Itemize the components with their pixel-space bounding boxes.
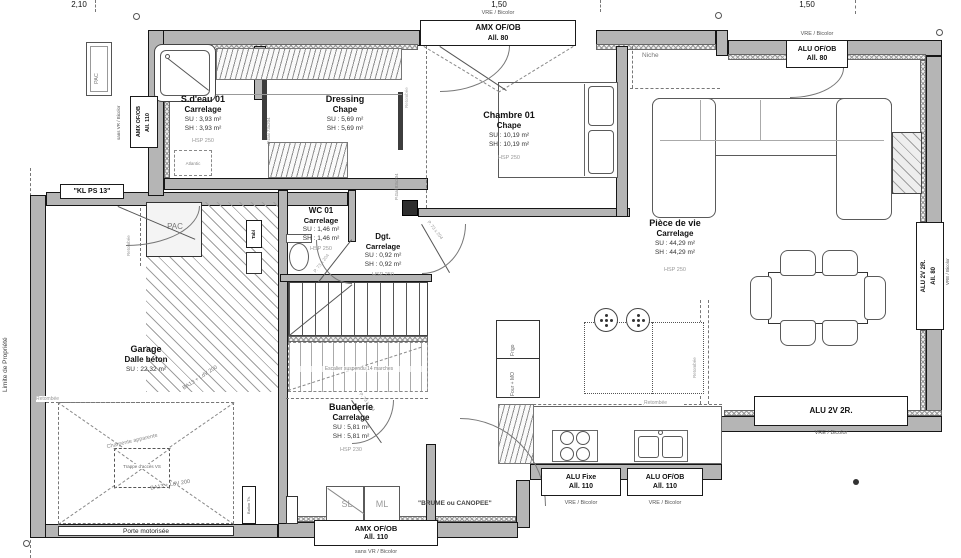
insulation-strip bbox=[596, 44, 716, 50]
water-heater: Ballon Th. bbox=[242, 486, 256, 524]
chair bbox=[750, 276, 772, 320]
chair bbox=[780, 320, 816, 346]
structural-post bbox=[402, 200, 418, 216]
sink-basin bbox=[662, 436, 683, 458]
ceiling-change-line bbox=[426, 46, 427, 208]
interior-wall bbox=[426, 444, 436, 524]
chair bbox=[780, 250, 816, 276]
bed-headboard-line bbox=[584, 84, 585, 176]
pillow bbox=[588, 86, 614, 126]
pac-label: PAC bbox=[94, 56, 104, 84]
retombee-line bbox=[286, 398, 428, 399]
retombee-label: Retombée bbox=[644, 400, 684, 406]
burner-icon bbox=[576, 447, 590, 461]
stairs-label: Escalier suspendu 14 marches bbox=[296, 366, 422, 372]
window-note: sans VR / Bicolor bbox=[116, 94, 126, 152]
exterior-wall bbox=[716, 30, 728, 56]
window-label-kitchen-ofob: ALU OF/OB All. 110 bbox=[627, 468, 703, 496]
sofa-chaise bbox=[836, 98, 892, 220]
kitchen-island bbox=[584, 322, 704, 394]
dining-table bbox=[768, 272, 868, 324]
retombee-label: Retombée bbox=[404, 70, 413, 108]
room-label-sdeau: S.d'eau 01 Carrelage SU : 3,93 m² SH : 3… bbox=[164, 94, 242, 144]
wall-fixture bbox=[286, 496, 298, 524]
room-label-piece-de-vie: Pièce de vie Carrelage SU : 44,29 m² SH … bbox=[640, 218, 710, 273]
dimension-tick bbox=[855, 0, 856, 14]
wall-fixture bbox=[246, 252, 262, 274]
stool-dots-icon bbox=[605, 319, 608, 322]
insulation-strip bbox=[920, 330, 926, 416]
unit-divider bbox=[496, 358, 540, 359]
retombee-label: Retombée bbox=[36, 396, 76, 402]
floor-plan: 2,10 1,50 1,50 Limite de Propriété bbox=[0, 0, 961, 558]
property-boundary-label: Limite de Propriété bbox=[2, 292, 14, 392]
window-note: VRE / Bicolor bbox=[786, 31, 848, 37]
window-label-kitchen-fixed: ALU Fixe All. 110 bbox=[541, 468, 621, 496]
bar-stool bbox=[594, 308, 618, 332]
dimension-label: 1,50 bbox=[482, 0, 516, 9]
garage-door-label: Porte motorisée bbox=[96, 528, 196, 535]
drain-marker bbox=[853, 479, 859, 485]
stool-dots-icon bbox=[637, 319, 640, 322]
window-note: sans VR / Bicolor bbox=[336, 549, 416, 555]
window-label-right: ALU 2V 2R. All. 80 bbox=[916, 222, 944, 330]
dimension-label: 1,50 bbox=[790, 0, 824, 9]
niche-line bbox=[630, 88, 720, 89]
sofa-cushion-line bbox=[660, 140, 884, 141]
retombee-label: Retombée bbox=[692, 334, 701, 378]
dressing-closet bbox=[216, 48, 402, 80]
electrical-panel: Tabl bbox=[246, 220, 262, 248]
cooktop bbox=[552, 430, 598, 462]
flue-duct bbox=[892, 132, 922, 194]
room-label-wc: WC 01 Carrelage SU : 1,46 m² SH : 1,46 m… bbox=[292, 206, 350, 252]
dryer-label: ML bbox=[365, 499, 399, 509]
radiator: Atlantic bbox=[174, 150, 212, 176]
faucet bbox=[658, 430, 663, 435]
pocket-door bbox=[398, 92, 403, 150]
oven-label: Four + MO bbox=[510, 360, 524, 396]
window-label-left: AMX OF/OB All. 110 bbox=[130, 96, 158, 148]
dryer: ML bbox=[364, 486, 400, 522]
burner-icon bbox=[560, 447, 574, 461]
window-label-laundry: AMX OF/OB All. 110 bbox=[314, 520, 438, 546]
window-note: VRE / Bicolor bbox=[452, 10, 544, 16]
niche-label: Niche bbox=[642, 52, 682, 59]
retombee-line bbox=[708, 300, 709, 404]
shower-drain bbox=[165, 54, 170, 59]
dimension-tick bbox=[95, 0, 96, 12]
door-swing-arc bbox=[790, 68, 844, 98]
entry-door-label: "KL PS 13" bbox=[60, 184, 124, 199]
pillow bbox=[588, 130, 614, 174]
window-note: VRE / Bicolor bbox=[788, 430, 874, 436]
room-label-dressing: Dressing Chape SU : 5,69 m² SH : 5,69 m² bbox=[314, 94, 376, 134]
stair-flight-upper bbox=[288, 282, 428, 336]
bar-stool bbox=[626, 308, 650, 332]
window-note: VRE / Bicolor bbox=[549, 500, 613, 506]
interior-wall bbox=[418, 208, 630, 217]
window-note: VRE / Bicolor bbox=[635, 500, 695, 506]
brume-label: "BRUME ou CANOPEE" bbox=[418, 500, 518, 507]
sink-basin bbox=[638, 436, 659, 458]
corner-marker bbox=[936, 29, 943, 36]
window-label-top: AMX OF/OB All. 80 bbox=[420, 20, 576, 46]
island-divider bbox=[652, 322, 653, 394]
dimension-label: 2,10 bbox=[62, 0, 96, 9]
trap-door-label: Trappe d'accès VS bbox=[116, 464, 168, 469]
corner-marker bbox=[715, 12, 722, 19]
chair bbox=[822, 250, 858, 276]
corner-marker bbox=[23, 540, 30, 547]
pocket-door-label: P.Gal 83x204 bbox=[394, 150, 403, 200]
door-swing-arc bbox=[422, 224, 466, 274]
dressing-closet bbox=[268, 142, 348, 178]
interior-wall bbox=[164, 178, 428, 190]
niche-line bbox=[632, 46, 633, 88]
room-label-garage: Garage Dalle béton SU : 22,32 m² bbox=[110, 344, 182, 374]
chair bbox=[822, 320, 858, 346]
sofa-cushion-line bbox=[700, 100, 701, 140]
room-label-dgt: Dgt. Carrelage SU : 0,92 m² SH : 0,92 m²… bbox=[354, 232, 412, 278]
bay-window-label: ALU 2V 2R. bbox=[754, 396, 908, 426]
pocket-door-label: P.Gal 73x204 bbox=[266, 100, 275, 144]
fridge-label: Frigo bbox=[510, 324, 524, 356]
dimension-tick bbox=[600, 0, 601, 12]
window-note: VRE / Bicolor bbox=[945, 236, 955, 308]
burner-icon bbox=[576, 431, 590, 445]
corner-marker bbox=[133, 13, 140, 20]
room-label-chambre: Chambre 01 Chape SU : 10,19 m² SH : 10,1… bbox=[474, 110, 544, 161]
window-label-top-right: ALU OF/OB All. 80 bbox=[786, 40, 848, 68]
sofa-chaise bbox=[652, 98, 716, 218]
burner-icon bbox=[560, 431, 574, 445]
sofa-cushion-line bbox=[760, 100, 761, 140]
room-label-buanderie: Buanderie Carrelage SU : 5,81 m² SH : 5,… bbox=[312, 402, 390, 453]
exterior-wall bbox=[30, 195, 46, 538]
chair bbox=[864, 276, 886, 320]
